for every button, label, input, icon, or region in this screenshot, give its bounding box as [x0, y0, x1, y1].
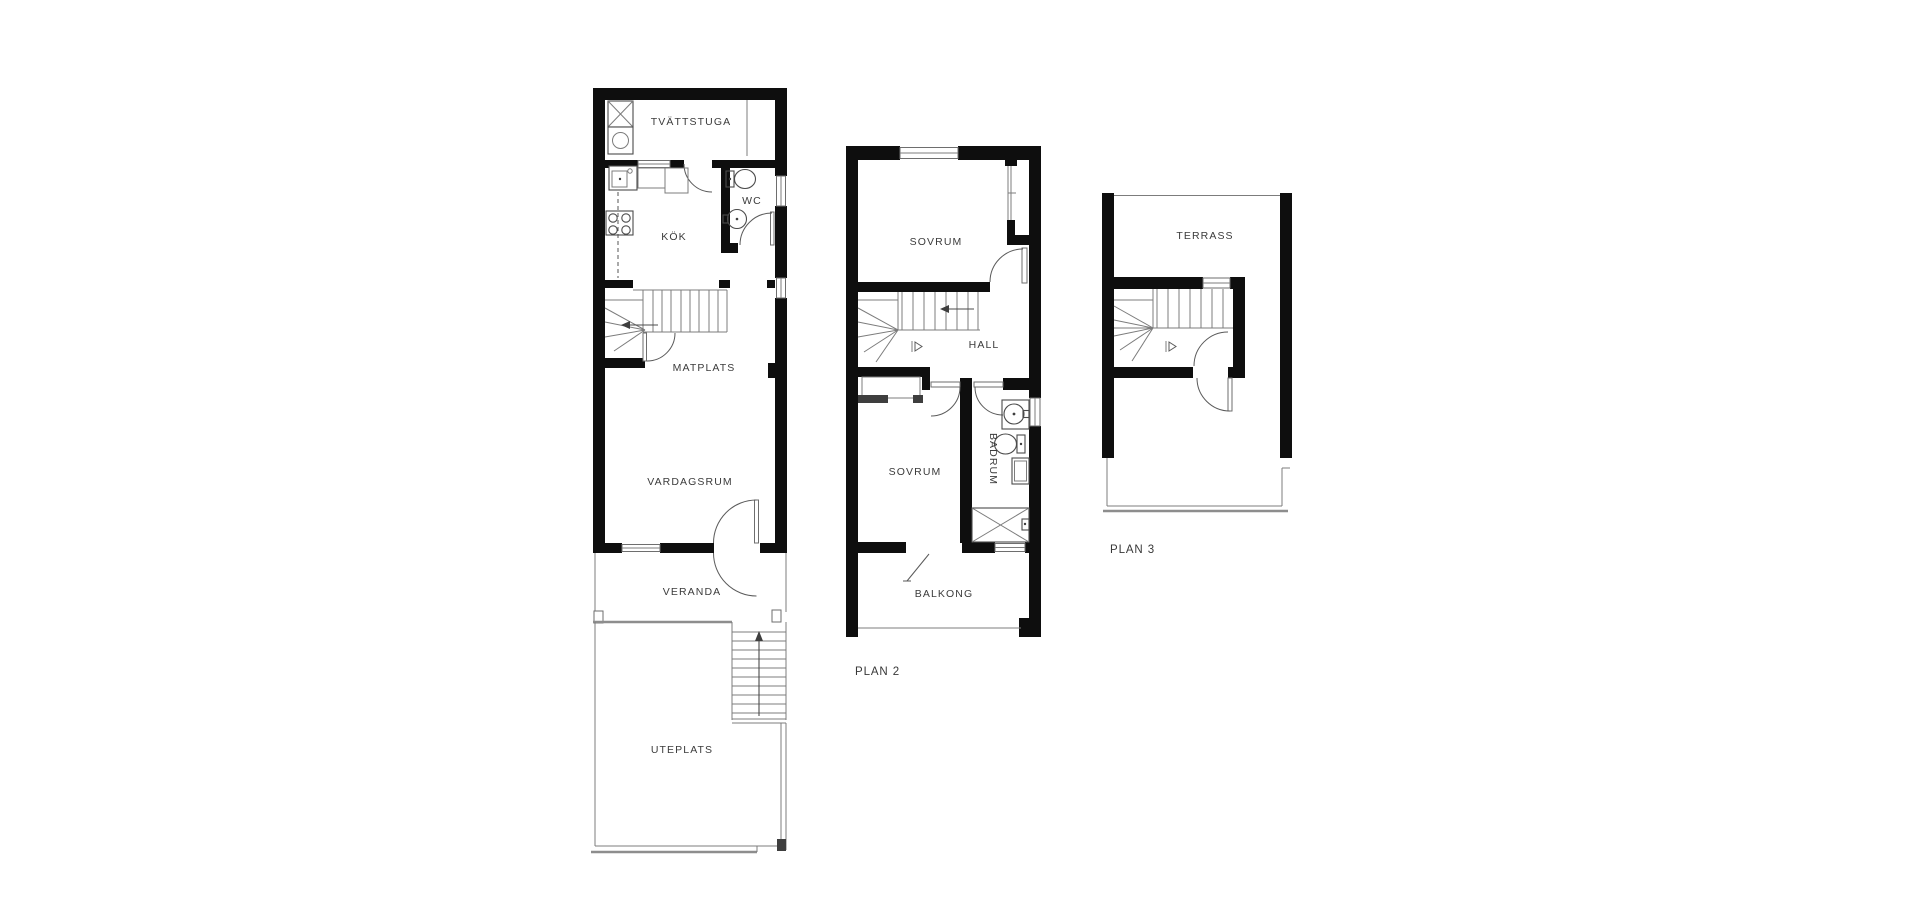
- shower-icon: [972, 508, 1029, 542]
- room-label-terrass: TERRASS: [1176, 230, 1233, 242]
- kitchen-sink-icon: [609, 166, 637, 190]
- outdoor-stairs: [732, 622, 786, 723]
- plan1-stairs: [605, 290, 727, 351]
- uteplats-outline: [591, 622, 786, 852]
- room-label-veranda: VERANDA: [663, 586, 721, 598]
- room-label-sovrum-bottom: SOVRUM: [889, 466, 942, 478]
- room-label-matplats: MATPLATS: [673, 362, 736, 374]
- closet-sovrum-bottom: [858, 377, 923, 403]
- floorplan-image: TVÄTTSTUGA WC KÖK MATPLATS VARDAGSRUM VE…: [0, 0, 1920, 920]
- dryer-icon: [608, 127, 633, 154]
- bathroom-toilet-icon: [995, 434, 1026, 454]
- bathroom-basin-icon: [1002, 400, 1029, 429]
- wc-toilet-icon: [726, 170, 756, 189]
- terrace-lower-outline: [1103, 458, 1290, 511]
- room-label-hall: HALL: [969, 339, 1000, 351]
- room-label-uteplats: UTEPLATS: [651, 744, 713, 756]
- plan1-doors: [643, 164, 774, 596]
- wardrobe-sovrum-top: [1008, 166, 1016, 220]
- plan3-doors: [1194, 332, 1232, 411]
- plan2-walls: [846, 146, 1041, 637]
- plan2-floorplan: [846, 146, 1041, 637]
- plan2-label: PLAN 2: [855, 666, 900, 678]
- room-label-vardagsrum: VARDAGSRUM: [647, 476, 732, 488]
- washer-icon: [608, 101, 633, 127]
- room-label-sovrum-top: SOVRUM: [910, 236, 963, 248]
- plan3-windows: [1203, 278, 1230, 288]
- room-label-balkong: BALKONG: [915, 588, 973, 600]
- floorplan-drawing: [0, 0, 1920, 920]
- room-label-wc: WC: [742, 195, 762, 207]
- plan3-stairs: [1114, 289, 1233, 361]
- stove-icon: [606, 211, 633, 235]
- plan2-stairs: [858, 292, 980, 362]
- room-label-badrum: BADRUM: [987, 433, 999, 485]
- room-label-kok: KÖK: [661, 231, 686, 243]
- washing-machine-icon: [1012, 458, 1029, 484]
- room-label-tvattstuga: TVÄTTSTUGA: [651, 116, 731, 128]
- plan3-label: PLAN 3: [1110, 544, 1155, 556]
